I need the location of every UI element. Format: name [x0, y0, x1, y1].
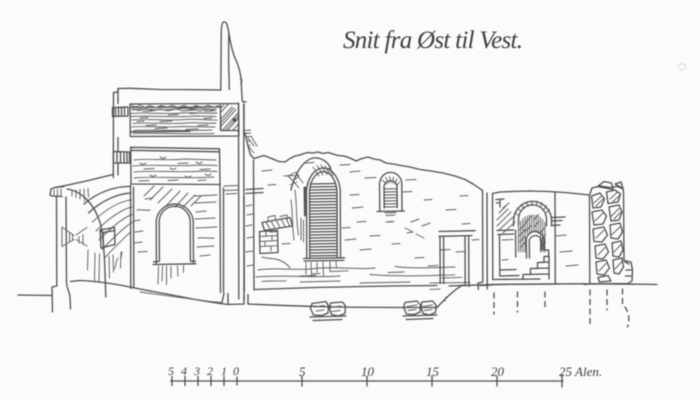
svg-text:20: 20 — [491, 364, 505, 379]
svg-text:1: 1 — [221, 364, 227, 378]
svg-text:2: 2 — [207, 364, 213, 378]
svg-text:5: 5 — [299, 364, 306, 379]
svg-text:0: 0 — [233, 364, 239, 378]
svg-text:25 Alen.: 25 Alen. — [559, 364, 602, 379]
svg-text:10: 10 — [361, 364, 375, 379]
svg-text:4: 4 — [181, 364, 187, 378]
svg-text:5: 5 — [168, 364, 174, 378]
svg-text:Snit fra Øst til Vest.: Snit fra Øst til Vest. — [343, 27, 523, 54]
svg-text:3: 3 — [193, 364, 200, 378]
svg-text:15: 15 — [426, 364, 440, 379]
